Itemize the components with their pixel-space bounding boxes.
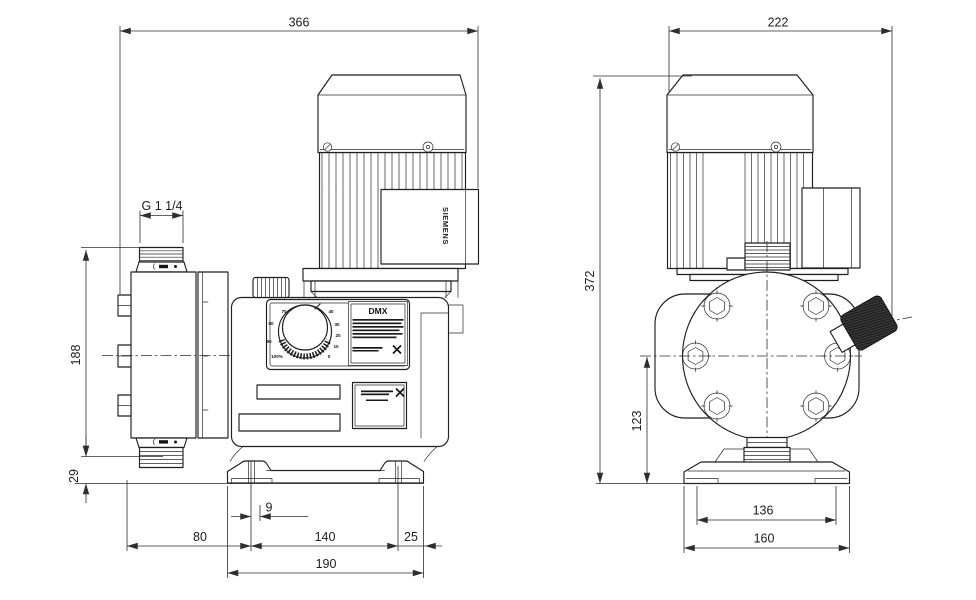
vent-plug-knob	[253, 278, 289, 298]
dial-label-40: 40	[328, 309, 334, 314]
base-side	[228, 461, 424, 483]
label-plate-small	[257, 385, 340, 399]
dial-label-90: 90	[266, 339, 272, 344]
dim-slot-width: 9	[266, 501, 273, 515]
motor-side: SIEMENS	[303, 75, 479, 298]
instruction-plate: DMX	[349, 302, 408, 366]
pump-dimensional-drawing: SIEMENS	[0, 0, 976, 600]
dim-base-depth: 190	[316, 557, 337, 571]
dim-base-width: 160	[754, 532, 775, 546]
dial-label-100: 100%	[271, 354, 283, 359]
dim-overall-width: 222	[768, 16, 789, 30]
dial-label-20: 20	[335, 333, 341, 338]
motor-front	[667, 75, 860, 269]
front-view: 222 372 123 136 160	[583, 16, 912, 554]
base-front	[684, 462, 850, 484]
motor-brand-label: SIEMENS	[441, 207, 450, 245]
dim-overall-height: 372	[583, 271, 597, 292]
dim-feet-spacing: 136	[753, 504, 774, 518]
dim-thread-size: G 1 1/4	[142, 199, 183, 213]
dial-label-70: 70	[281, 309, 287, 314]
dial-label-10: 10	[333, 344, 339, 349]
terminal-box-side	[381, 190, 479, 265]
suction-connector	[715, 438, 818, 465]
label-plate-wide	[239, 414, 340, 431]
nameplate	[353, 383, 407, 429]
dial-label-80: 80	[268, 321, 274, 326]
dim-slot-spacing: 140	[315, 530, 336, 544]
dim-slot-to-edge: 25	[404, 530, 418, 544]
dim-head-to-slot: 80	[193, 530, 207, 544]
technical-drawing-page: SIEMENS	[0, 0, 976, 600]
dial-label-30: 30	[334, 322, 340, 327]
dial-label-0: 0	[328, 354, 331, 359]
pump-head-front	[596, 241, 912, 484]
dim-foot-height: 29	[67, 469, 81, 483]
dim-overall-depth: 366	[289, 16, 310, 30]
side-view: SIEMENS	[67, 16, 479, 579]
dosing-head-side	[102, 248, 232, 468]
dim-center-height: 123	[630, 411, 644, 432]
dim-head-height: 188	[69, 345, 83, 366]
model-label: DMX	[369, 306, 388, 316]
